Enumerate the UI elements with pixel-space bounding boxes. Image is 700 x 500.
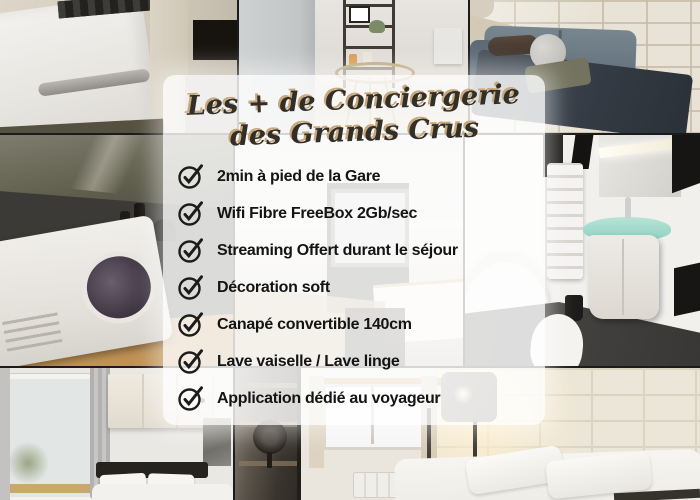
- amenity-item: Wifi Fibre FreeBox 2Gb/sec: [177, 195, 545, 232]
- amenity-label: 2min à pied de la Gare: [217, 168, 380, 186]
- amenity-item: Canapé convertible 140cm: [177, 306, 545, 343]
- amenity-item: 2min à pied de la Gare: [177, 158, 545, 195]
- amenity-label: Canapé convertible 140cm: [217, 316, 412, 334]
- amenity-label: Lave vaiselle / Lave linge: [217, 353, 400, 371]
- plant: [369, 20, 385, 33]
- faucet: [625, 197, 631, 219]
- amenity-label: Wifi Fibre FreeBox 2Gb/sec: [217, 205, 417, 223]
- fan-stand: [267, 452, 272, 468]
- curtain: [0, 368, 10, 500]
- amenity-label: Décoration soft: [217, 279, 330, 297]
- amenity-item: Décoration soft: [177, 269, 545, 306]
- amenity-label: Application dédié au voyageur: [217, 390, 440, 408]
- microwave-window: [76, 245, 161, 329]
- check-circle-icon: [177, 274, 204, 301]
- wall-art: [203, 418, 231, 466]
- black-tile: [672, 135, 700, 193]
- check-circle-icon: [177, 200, 204, 227]
- check-circle-icon: [177, 237, 204, 264]
- amenity-item: Streaming Offert durant le séjour: [177, 232, 545, 269]
- amenities-list: 2min à pied de la Gare Wifi Fibre FreeBo…: [163, 158, 545, 417]
- amenity-item: Application dédié au voyageur: [177, 380, 545, 417]
- check-circle-icon: [177, 385, 204, 412]
- vintage-fan: [253, 420, 287, 454]
- amenity-item: Lave vaiselle / Lave linge: [177, 343, 545, 380]
- microwave-vents: [1, 306, 62, 351]
- washing-machine: [0, 0, 162, 133]
- black-tile-band: [674, 262, 700, 316]
- card-title: Les + de Conciergerie des Grands Crus: [162, 78, 546, 155]
- picture-frame: [349, 6, 370, 23]
- wall-radiator: [434, 28, 462, 64]
- amenity-label: Streaming Offert durant le séjour: [217, 242, 458, 260]
- duvet: [92, 484, 233, 500]
- window-greenery: [8, 440, 48, 486]
- check-circle-icon: [177, 348, 204, 375]
- amenities-card: Les + de Conciergerie des Grands Crus 2m…: [163, 75, 545, 425]
- cabinet-seam: [142, 374, 144, 428]
- vanity-door-seam: [622, 239, 624, 315]
- check-circle-icon: [177, 311, 204, 338]
- check-circle-icon: [177, 163, 204, 190]
- towel-radiator: [547, 163, 583, 279]
- window-sill: [4, 484, 102, 493]
- dark-shelf-niche: [193, 20, 237, 60]
- promo-collage: Les + de Conciergerie des Grands Crus 2m…: [0, 0, 700, 500]
- corner-vanity: [589, 235, 659, 319]
